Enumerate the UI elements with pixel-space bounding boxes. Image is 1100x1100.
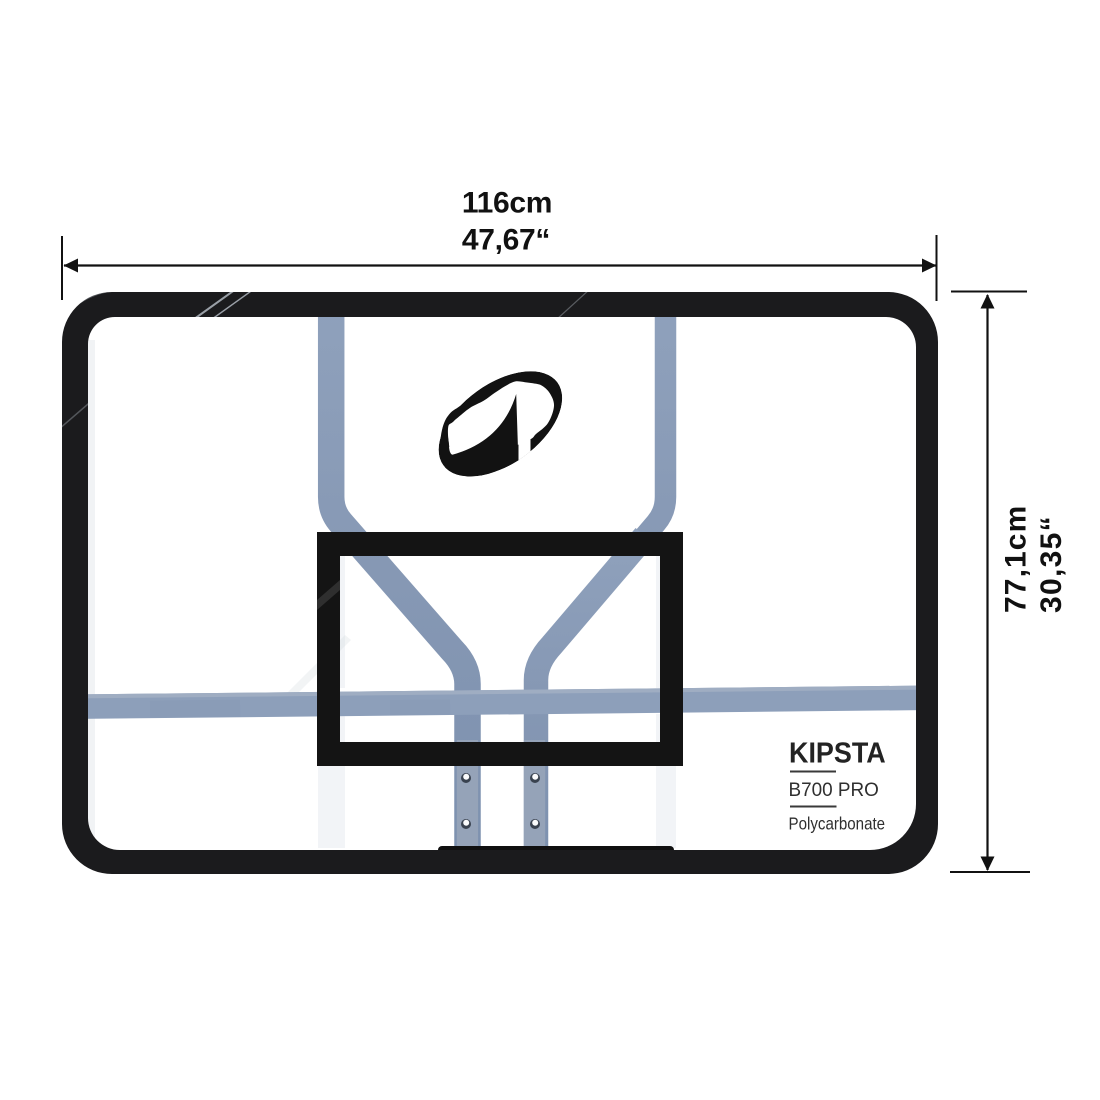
svg-text:B700 PRO: B700 PRO — [789, 780, 879, 801]
svg-text:Polycarbonate: Polycarbonate — [789, 813, 886, 834]
svg-text:KIPSTA: KIPSTA — [789, 737, 886, 769]
svg-text:30,35“: 30,35“ — [1035, 515, 1068, 613]
svg-text:77,1cm: 77,1cm — [999, 505, 1032, 613]
svg-text:47,67“: 47,67“ — [462, 224, 550, 257]
svg-text:116cm: 116cm — [462, 187, 552, 220]
